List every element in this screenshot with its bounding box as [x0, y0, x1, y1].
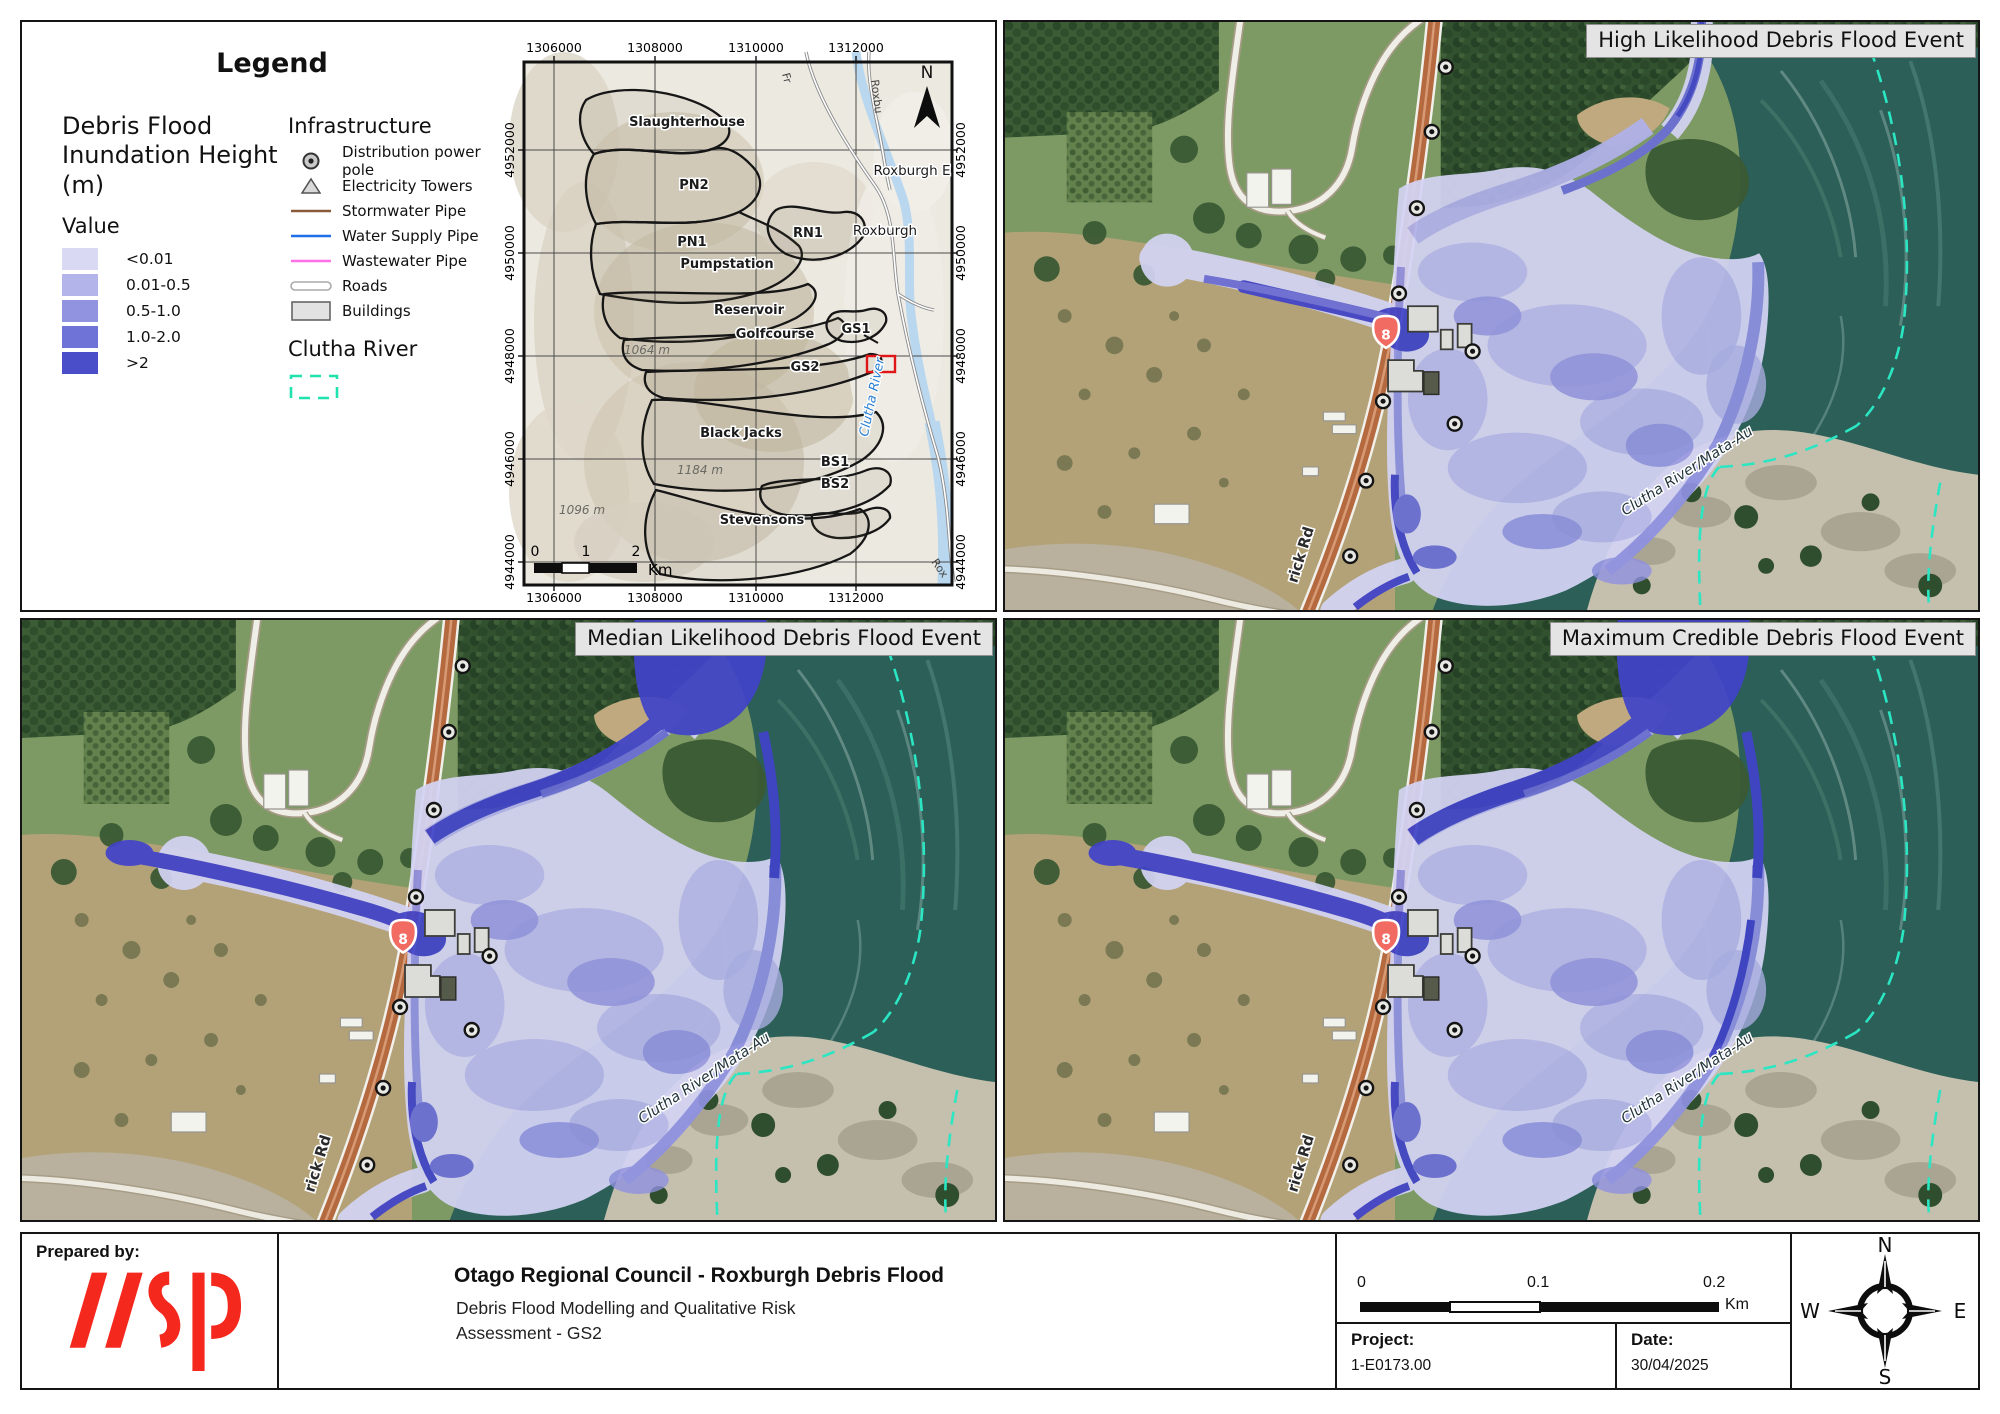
building	[1408, 910, 1438, 936]
infrastructure-row: Electricity Towers	[288, 173, 498, 198]
building	[1332, 1031, 1356, 1040]
power-pole-icon	[1439, 60, 1453, 74]
power-pole-icon	[393, 1000, 407, 1014]
elevation-label: 1064 m	[624, 343, 670, 357]
infrastructure-label: Electricity Towers	[342, 177, 473, 195]
highway-shield-number: 8	[1381, 328, 1391, 344]
clutha-river-swatch	[288, 373, 498, 405]
power-pole-icon	[1359, 1081, 1373, 1095]
elevation-label: 1184 m	[677, 463, 723, 477]
building	[1154, 504, 1189, 524]
scalebar-tick-2: 0.2	[1703, 1274, 1725, 1292]
catchment-label: Stevensons	[720, 513, 805, 528]
x-tick-label: 1306000	[526, 40, 582, 55]
flood-value-row: 0.5-1.0	[62, 298, 292, 324]
svg-text:Km: Km	[648, 561, 672, 579]
flood-value-label: 0.5-1.0	[126, 302, 181, 320]
catchment-label: BS1	[821, 455, 849, 470]
flood-value-list: <0.010.01-0.50.5-1.01.0-2.0>2	[62, 246, 292, 376]
map-panel-median: 8rick RdClutha River/Mata-Au Median Like…	[20, 618, 997, 1222]
x-tick-label: 1312000	[828, 40, 884, 55]
building	[1441, 330, 1453, 350]
scalebar-box: 0 0.1 0.2 Km Project: 1-E0173.00 Date: 3…	[1335, 1234, 1792, 1388]
catchment-label: GS1	[841, 322, 870, 337]
date-label: Date:	[1631, 1330, 1674, 1350]
flood-value-label: 0.01-0.5	[126, 276, 191, 294]
building	[475, 928, 489, 952]
infrastructure-row: Buildings	[288, 298, 498, 323]
flood-value-swatch	[62, 274, 98, 296]
infrastructure-heading: Infrastructure	[288, 114, 498, 138]
building	[340, 1018, 362, 1027]
clutha-dash-icon	[288, 373, 342, 401]
power-pole-icon	[456, 659, 470, 673]
value-label: Value	[62, 214, 292, 238]
power-pole-icon	[1439, 659, 1453, 673]
infrastructure-row: Roads	[288, 273, 498, 298]
scalebar-graphic	[1360, 1300, 1740, 1316]
building	[1154, 1112, 1189, 1132]
flood-heading-line3: (m)	[62, 171, 292, 200]
x-tick-label: 1310000	[728, 40, 784, 55]
place-label: Roxburgh E	[874, 163, 951, 179]
date-cell: Date: 30/04/2025	[1617, 1324, 1790, 1388]
infrastructure-row: Stormwater Pipe	[288, 198, 498, 223]
catchment-label: BS2	[821, 477, 849, 492]
building	[1424, 372, 1439, 395]
building	[1302, 1074, 1318, 1083]
power-pole-icon	[1466, 344, 1480, 358]
x-tick-label: 1306000	[526, 590, 582, 605]
flood-value-label: 1.0-2.0	[126, 328, 181, 346]
power-pole-icon	[465, 1023, 479, 1037]
building-icon	[289, 300, 333, 322]
infrastructure-label: Stormwater Pipe	[342, 202, 466, 220]
power-pole-icon	[1425, 125, 1439, 139]
elevation-label: 1096 m	[559, 503, 605, 517]
compass-s-label: S	[1879, 1365, 1892, 1388]
building	[1247, 774, 1269, 809]
electricity-tower-icon	[301, 177, 321, 195]
compass-e-label: E	[1954, 1299, 1967, 1323]
power-pole-icon	[427, 803, 441, 817]
title-block: Prepared by: Otago Regional Council - Ro…	[20, 1232, 1980, 1390]
power-pole-icon	[1448, 1023, 1462, 1037]
wsp-logo	[67, 1266, 267, 1371]
building	[1247, 173, 1269, 207]
catchment-label: Black Jacks	[700, 426, 782, 441]
power-pole-icon	[483, 949, 497, 963]
flood-value-swatch	[62, 300, 98, 322]
building	[425, 910, 455, 936]
flood-value-swatch	[62, 352, 98, 374]
x-tick-label: 1308000	[627, 40, 683, 55]
flood-value-swatch	[62, 326, 98, 348]
aerial-imagery: 8rick RdClutha River/Mata-Au	[1005, 22, 1978, 610]
svg-text:0: 0	[531, 544, 540, 560]
infrastructure-row: Distribution power pole	[288, 148, 498, 173]
project-value: 1-E0173.00	[1351, 1357, 1431, 1375]
catchment-label: Golfcourse	[736, 327, 815, 342]
power-pole-icon	[1410, 201, 1424, 215]
prepared-by-label: Prepared by:	[36, 1242, 140, 1262]
power-pole-icon	[1392, 287, 1406, 301]
infrastructure-legend-column: Infrastructure Distribution power poleEl…	[288, 114, 498, 405]
power-pole-icon	[376, 1081, 390, 1095]
power-pole-icon	[360, 1158, 374, 1172]
y-tick-label: 4944000	[502, 534, 517, 590]
highway-shield-number: 8	[398, 932, 408, 948]
map-panel-high: 8rick RdClutha River/Mata-Au High Likeli…	[1003, 20, 1980, 612]
y-tick-label: 4948000	[502, 328, 517, 384]
infrastructure-list: Distribution power poleElectricity Tower…	[288, 148, 498, 323]
power-pole-icon	[1376, 394, 1390, 408]
y-tick-label: 4950000	[502, 225, 517, 281]
compass-box: N E S W	[1792, 1234, 1978, 1388]
compass-n-label: N	[1878, 1234, 1893, 1257]
building	[1424, 977, 1439, 1000]
flood-value-row: 0.01-0.5	[62, 272, 292, 298]
map-title-high: High Likelihood Debris Flood Event	[1586, 24, 1976, 58]
aerial-map-median: 8rick RdClutha River/Mata-Au	[22, 620, 995, 1220]
map-sheet: Legend Debris Flood Inundation Height (m…	[0, 0, 2000, 1414]
highway-shield-number: 8	[1381, 932, 1391, 948]
pipe-line-icon	[289, 207, 333, 215]
aerial-map-max: 8rick RdClutha River/Mata-Au	[1005, 620, 1978, 1220]
sheet-subtitle: Debris Flood Modelling and Qualitative R…	[456, 1296, 795, 1347]
building	[1272, 169, 1292, 204]
locator-map: SlaughterhousePN2PN1PumpstationRN1Reserv…	[492, 36, 988, 606]
building	[1323, 412, 1345, 421]
flood-value-label: >2	[126, 354, 149, 372]
building	[1458, 324, 1472, 348]
power-pole-icon	[1410, 803, 1424, 817]
flood-value-row: <0.01	[62, 246, 292, 272]
project-date-row: Project: 1-E0173.00 Date: 30/04/2025	[1337, 1324, 1790, 1388]
flood-value-swatch	[62, 248, 98, 270]
building	[171, 1112, 206, 1132]
sheet-title: Otago Regional Council - Roxburgh Debris…	[454, 1264, 944, 1288]
power-pole-icon	[1425, 725, 1439, 739]
x-tick-label: 1312000	[828, 590, 884, 605]
project-label: Project:	[1351, 1330, 1414, 1350]
x-tick-label: 1310000	[728, 590, 784, 605]
building	[319, 1074, 335, 1083]
map-panel-max: 8rick RdClutha River/Mata-Au Maximum Cre…	[1003, 618, 1980, 1222]
infrastructure-label: Distribution power pole	[342, 143, 498, 179]
infrastructure-row: Wastewater Pipe	[288, 248, 498, 273]
power-pole-icon	[1359, 474, 1373, 488]
sheet-subtitle-line1: Debris Flood Modelling and Qualitative R…	[456, 1296, 795, 1321]
flood-heading-line2: Inundation Height	[62, 141, 292, 170]
scalebar-tick-0: 0	[1357, 1274, 1366, 1292]
x-tick-label: 1308000	[627, 590, 683, 605]
road-icon	[289, 280, 333, 292]
catchment-outline	[586, 148, 760, 224]
y-tick-label: 4946000	[502, 431, 517, 487]
flood-legend-column: Debris Flood Inundation Height (m) Value…	[62, 112, 292, 376]
flood-value-row: >2	[62, 350, 292, 376]
pipe-line-icon	[289, 232, 333, 240]
map-title-median: Median Likelihood Debris Flood Event	[575, 622, 993, 656]
power-pole-icon	[1376, 1000, 1390, 1014]
aerial-imagery: 8rick RdClutha River/Mata-Au	[1005, 620, 1978, 1220]
flood-value-row: 1.0-2.0	[62, 324, 292, 350]
legend-title: Legend	[22, 48, 522, 79]
svg-text:1: 1	[582, 544, 591, 560]
aerial-map-high: 8rick RdClutha River/Mata-Au	[1005, 22, 1978, 610]
y-tick-label: 4952000	[502, 122, 517, 178]
building	[264, 774, 286, 809]
locator-map-svg: SlaughterhousePN2PN1PumpstationRN1Reserv…	[492, 36, 988, 606]
clutha-river-heading: Clutha River	[288, 337, 498, 361]
aerial-imagery: 8rick RdClutha River/Mata-Au	[22, 620, 995, 1220]
catchment-label: Pumpstation	[680, 257, 773, 272]
infrastructure-row: Water Supply Pipe	[288, 223, 498, 248]
flood-heading-line1: Debris Flood	[62, 112, 292, 141]
power-pole-icon	[1343, 549, 1357, 563]
svg-text:2: 2	[632, 544, 641, 560]
infrastructure-label: Water Supply Pipe	[342, 227, 479, 245]
building	[349, 1031, 373, 1040]
building	[289, 770, 309, 806]
date-value: 30/04/2025	[1631, 1357, 1709, 1375]
catchment-label: Reservoir	[714, 303, 785, 318]
compass-rose-icon: N E S W	[1792, 1234, 1978, 1388]
building	[1323, 1018, 1345, 1027]
catchment-label: PN1	[677, 235, 706, 250]
power-pole-icon	[1448, 417, 1462, 431]
power-pole-icon	[409, 890, 423, 904]
sheet-subtitle-line2: Assessment - GS2	[456, 1321, 795, 1346]
infrastructure-label: Buildings	[342, 302, 411, 320]
building	[1302, 467, 1318, 476]
catchment-label: Slaughterhouse	[629, 115, 745, 130]
scalebar-tick-1: 0.1	[1527, 1274, 1549, 1292]
building	[1332, 425, 1356, 434]
legend-panel: Legend Debris Flood Inundation Height (m…	[20, 20, 997, 612]
building	[1458, 928, 1472, 952]
catchment-label: RN1	[793, 226, 823, 241]
place-label: Roxburgh	[853, 223, 917, 239]
building	[1441, 934, 1453, 954]
catchment-label: GS2	[790, 360, 819, 375]
building	[441, 977, 456, 1000]
scalebar-row: 0 0.1 0.2 Km	[1337, 1234, 1790, 1324]
pipe-line-icon	[289, 257, 333, 265]
power-pole-icon	[301, 151, 321, 171]
power-pole-icon	[1466, 949, 1480, 963]
power-pole-icon	[1343, 1158, 1357, 1172]
catchment-label: PN2	[679, 178, 708, 193]
building	[1408, 306, 1438, 331]
infrastructure-label: Wastewater Pipe	[342, 252, 467, 270]
prepared-by-box: Prepared by:	[22, 1234, 279, 1388]
flood-value-label: <0.01	[126, 250, 174, 268]
title-area: Otago Regional Council - Roxburgh Debris…	[279, 1234, 1335, 1388]
building	[458, 934, 470, 954]
power-pole-icon	[442, 725, 456, 739]
infrastructure-label: Roads	[342, 277, 387, 295]
power-pole-icon	[1392, 890, 1406, 904]
building	[1272, 770, 1292, 806]
north-label: N	[921, 63, 934, 83]
project-cell: Project: 1-E0173.00	[1337, 1324, 1617, 1388]
compass-w-label: W	[1800, 1299, 1820, 1323]
map-title-max: Maximum Credible Debris Flood Event	[1550, 622, 1976, 656]
